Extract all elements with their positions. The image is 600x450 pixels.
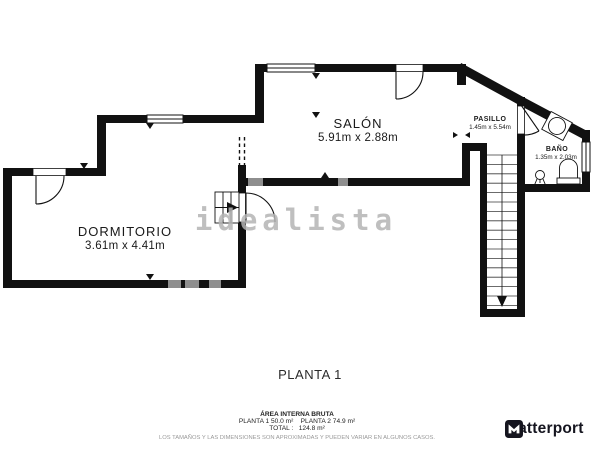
area-per-floor: PLANTA 1 50.0 m² PLANTA 2 74.9 m² <box>159 418 435 425</box>
door-jamb-layer <box>33 65 525 223</box>
room-label-dormitorio: DORMITORIO <box>78 224 172 239</box>
dashed-opening <box>240 137 245 167</box>
room-dims-pasillo: 1.45m x 5.54m <box>469 124 511 131</box>
area-summary: ÁREA INTERNA BRUTA PLANTA 1 50.0 m² PLAN… <box>159 411 435 442</box>
toilet-icon <box>557 159 580 184</box>
room-label-pasillo: PASILLO <box>474 116 507 123</box>
matterport-branding: Matterport <box>505 420 584 438</box>
matterport-logo-icon <box>505 420 523 438</box>
bidet-icon <box>535 171 546 186</box>
disclaimer-text: LOS TAMAÑOS Y LAS DIMENSIONES SON APROXI… <box>159 435 435 442</box>
floorplan-page: SALÓN 5.91m x 2.88m DORMITORIO 3.61m x 4… <box>0 0 600 450</box>
area-total: TOTAL : 124.8 m² <box>159 425 435 432</box>
idealista-watermark: idealista <box>195 203 397 237</box>
room-dims-salon: 5.91m x 2.88m <box>318 132 398 144</box>
room-label-bano: BAÑO <box>546 146 568 153</box>
room-label-salon: SALÓN <box>333 116 382 131</box>
room-dims-dormitorio: 3.61m x 4.41m <box>85 240 165 252</box>
stairs-icon <box>487 155 517 307</box>
floor-title: PLANTA 1 <box>278 367 342 382</box>
area-title: ÁREA INTERNA BRUTA <box>159 411 435 418</box>
room-dims-bano: 1.35m x 2.03m <box>535 154 577 161</box>
